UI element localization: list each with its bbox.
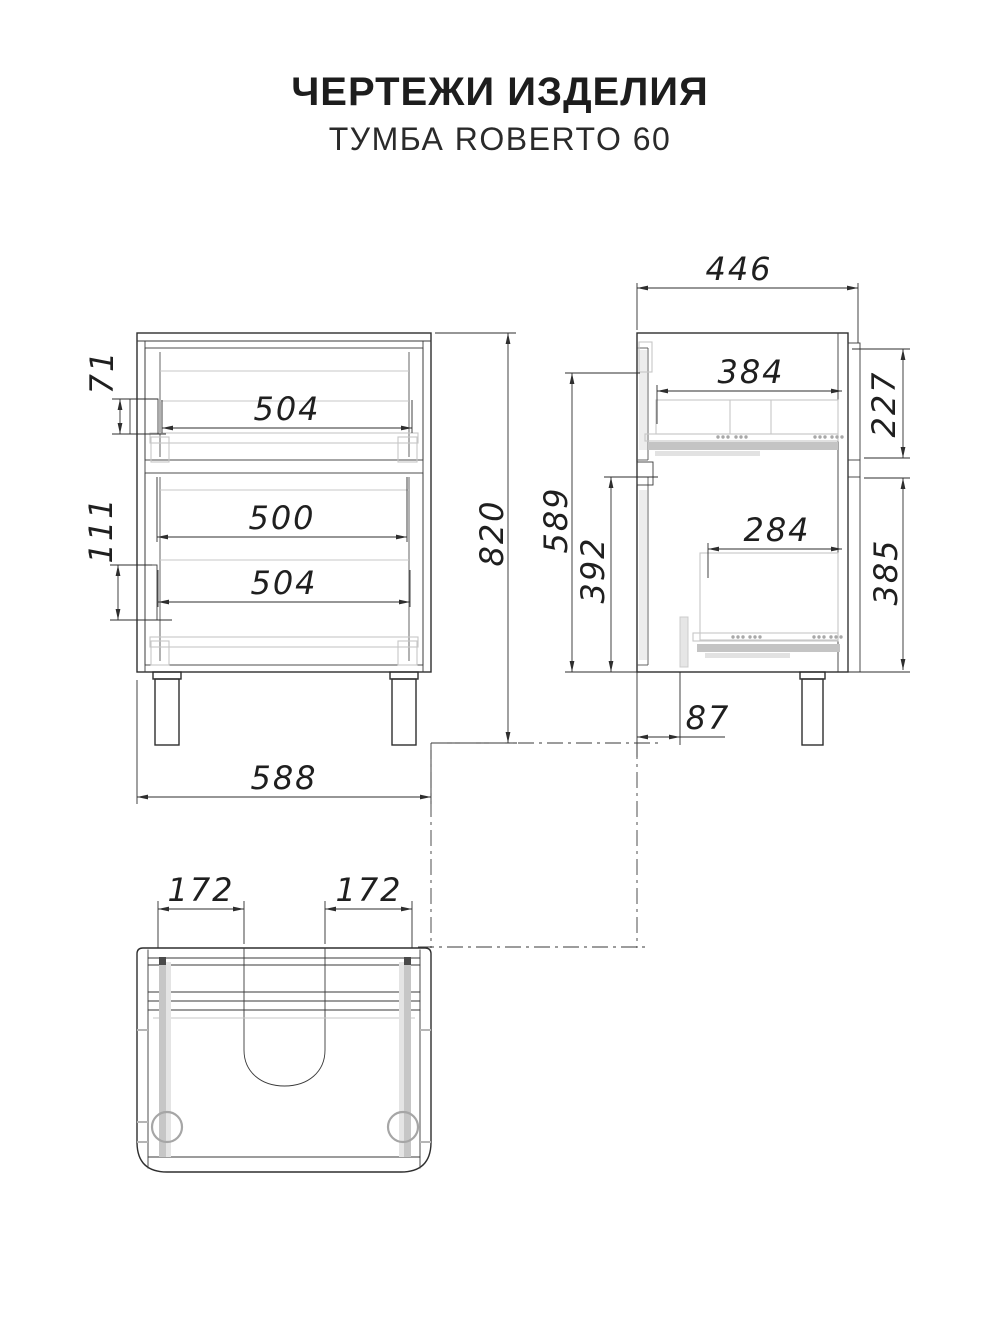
dim-side-bottom-drawer-depth: 284 — [743, 511, 810, 549]
siphon-cutout — [244, 948, 325, 1086]
technical-drawing: 504 500 504 820 588 71 — [0, 0, 1000, 1334]
dim-side-bottom-section-height: 385 — [867, 538, 905, 605]
dim-front-bottom-drawer-width: 504 — [250, 564, 317, 602]
side-view-dimensions: 446 384 227 385 589 392 — [537, 250, 910, 757]
slide-rivets-top — [716, 435, 843, 438]
dim-side-leg-front-offset: 87 — [686, 699, 731, 737]
dim-front-overall-width: 588 — [250, 759, 317, 797]
dim-side-interior-height: 589 — [537, 486, 575, 553]
dim-side-overall-depth: 446 — [705, 250, 772, 288]
dim-side-top-drawer-depth: 384 — [717, 353, 784, 391]
dim-front-bottom-slide-offset: 111 — [82, 496, 120, 563]
front-legs — [153, 672, 418, 745]
dim-front-top-drawer-width: 504 — [253, 390, 320, 428]
dim-front-middle-drawer-width: 500 — [248, 499, 315, 537]
bottom-cabinet-outline — [137, 948, 431, 1172]
construction-lines — [418, 743, 660, 948]
dim-bottom-left-slide-spacing: 172 — [167, 871, 234, 909]
dim-side-top-section-height: 227 — [865, 370, 903, 437]
dim-side-lower-interior-height: 392 — [574, 536, 612, 603]
side-leg — [800, 672, 825, 745]
bottom-view-dimensions: 172 172 — [158, 871, 412, 948]
front-slide-bracket-top — [130, 399, 158, 434]
side-back-rail — [848, 343, 860, 672]
dim-bottom-right-slide-spacing: 172 — [335, 871, 402, 909]
front-slide-bracket-bottom — [137, 565, 157, 620]
bottom-view — [137, 948, 431, 1172]
dim-front-overall-height: 820 — [473, 499, 511, 566]
dim-front-top-slide-offset: 71 — [83, 350, 121, 395]
front-view-dimensions: 504 500 504 820 588 71 — [82, 333, 517, 804]
slide-rivets-bottom — [731, 635, 842, 638]
side-slide-bracket — [637, 462, 653, 485]
drawing-sheet: ЧЕРТЕЖИ ИЗДЕЛИЯ ТУМБА ROBERTO 60 — [0, 0, 1000, 1334]
